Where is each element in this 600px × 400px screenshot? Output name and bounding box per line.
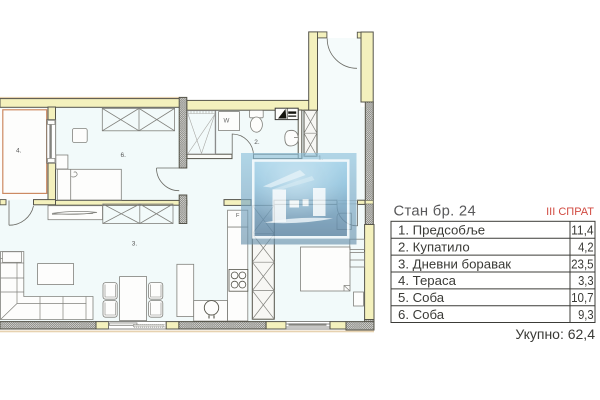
svg-text:11,4: 11,4: [571, 223, 594, 238]
svg-text:6.: 6.: [121, 152, 127, 159]
svg-text:5. Соба: 5. Соба: [398, 290, 445, 305]
svg-text:1. Предсобље: 1. Предсобље: [398, 223, 485, 238]
svg-text:6. Соба: 6. Соба: [398, 307, 445, 322]
svg-text:3.: 3.: [132, 240, 138, 247]
svg-text:3. Дневни боравак: 3. Дневни боравак: [398, 256, 511, 271]
svg-text:Укупно: 62,4: Укупно: 62,4: [515, 326, 595, 342]
svg-text:9,3: 9,3: [578, 307, 594, 322]
svg-text:III СПРАТ: III СПРАТ: [546, 206, 594, 218]
svg-text:4.: 4.: [16, 147, 22, 154]
svg-text:W: W: [224, 118, 230, 125]
svg-text:F: F: [236, 213, 240, 219]
svg-text:10,7: 10,7: [571, 290, 594, 305]
svg-text:23,5: 23,5: [571, 256, 594, 271]
svg-text:2.: 2.: [254, 139, 260, 146]
svg-text:Стан бр. 24: Стан бр. 24: [394, 204, 477, 220]
svg-text:2. Купатило: 2. Купатило: [398, 239, 470, 254]
svg-text:4,2: 4,2: [578, 239, 594, 254]
svg-text:4. Тераса: 4. Тераса: [398, 273, 457, 288]
svg-text:3,3: 3,3: [578, 273, 594, 288]
